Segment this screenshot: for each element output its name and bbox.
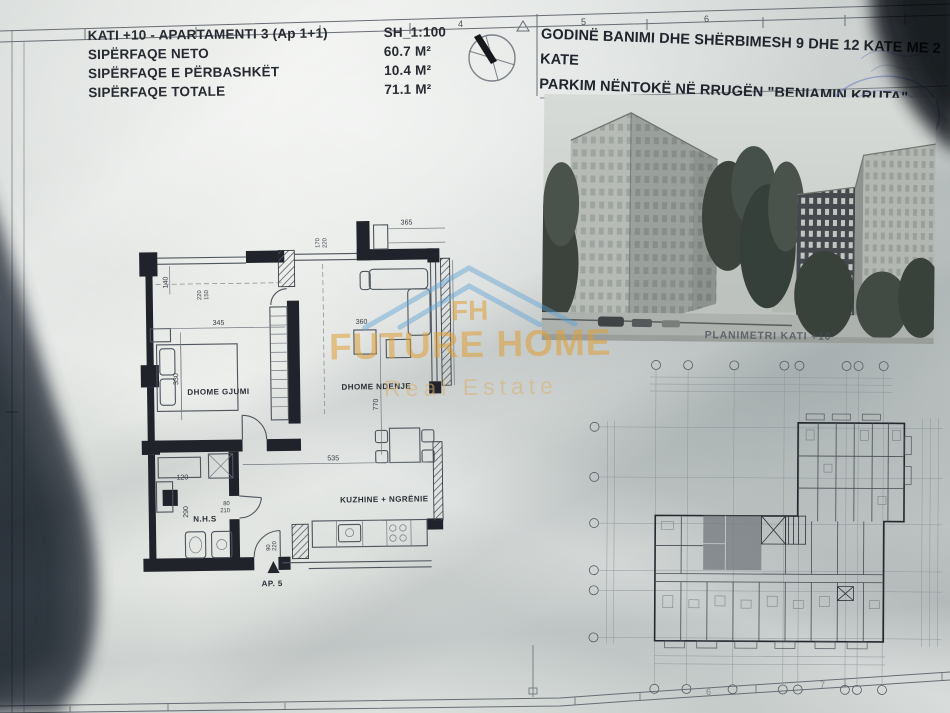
photo-shadows <box>0 0 950 713</box>
photo-of-floorplan-document: 4 5 6 6 7 KATI +1 <box>0 0 950 713</box>
